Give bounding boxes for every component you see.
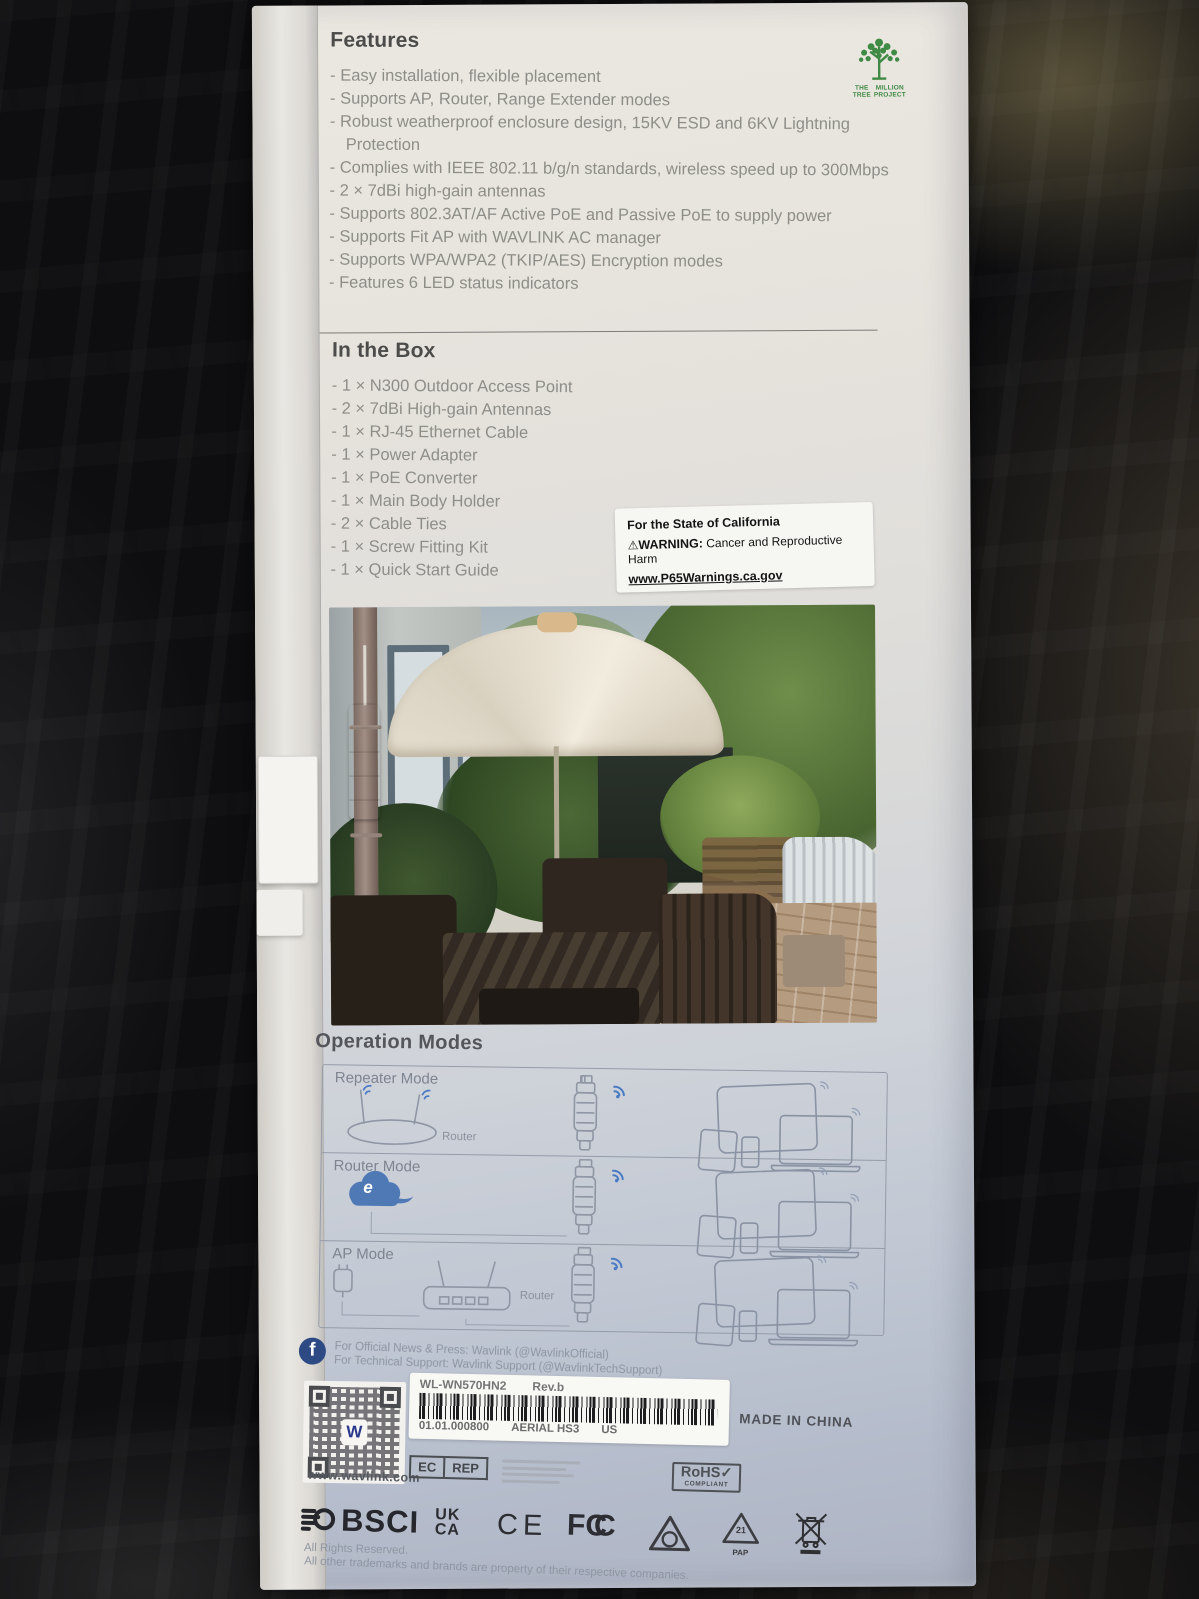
box-item: - 1 × Power Adapter [331,444,811,470]
warning-title: For the State of California [627,512,863,532]
sticker-code: 01.01.000800 [419,1420,490,1434]
wifi-signal-icon [606,1251,628,1273]
outdoor-access-point-device [349,703,381,819]
feature-item: - Complies with IEEE 802.11 b/g/n standa… [330,157,896,183]
operation-modes-heading: Operation Modes [315,1030,483,1055]
fcc-f: F [567,1509,586,1542]
feature-item: - Supports AP, Router, Range Extender mo… [330,88,896,114]
router-label: Router [442,1131,477,1143]
bsci-logo: BSCI [301,1502,420,1541]
pap-number: 21 [721,1525,761,1536]
pap-label: PAP [720,1548,760,1558]
feature-item: - Supports WPA/WPA2 (TKIP/AES) Encryptio… [329,249,895,275]
feature-item: - Easy installation, flexible placement [330,65,896,91]
dark-dining-chair [659,893,778,1024]
ap-antenna [363,645,366,705]
connection-line [465,1319,569,1326]
feature-item: - 2 × 7dBi high-gain antennas [329,180,895,206]
outdoor-ap-icon [567,1159,604,1239]
power-plug-icon [328,1263,359,1301]
sticker-name: AERIAL HS3 [511,1422,579,1436]
tree-logo-text: THE TREE MILLION PROJECT [846,84,912,98]
rohs-compliant-text: COMPLIANT [680,1480,732,1488]
internet-e-letter: e [363,1178,373,1198]
features-heading: Features [330,29,896,56]
features-list: - Easy installation, flexible placement … [329,65,896,298]
tree-icon [852,32,906,84]
model-barcode-sticker: WL-WN570HN2Rev.b 01.01.000800AERIAL HS3U… [409,1373,730,1446]
box-spine-torn-flap [258,756,319,884]
compliance-row: ECREP RoHS✓ COMPLIANT [409,1455,742,1493]
bsci-text: BSCI [341,1503,420,1541]
model-number: WL-WN570HN2 [420,1377,507,1393]
million-tree-project-logo: THE TREE MILLION PROJECT [846,32,912,98]
four-port-router-icon [415,1256,520,1319]
feature-item: - Supports Fit AP with WAVLINK AC manage… [329,226,895,252]
planter-pot [783,935,845,987]
qr-finder-square [380,1387,401,1408]
box-item: - 1 × N300 Outdoor Access Point [332,375,812,401]
social-text: For Official News & Press: Wavlink (@Wav… [334,1339,665,1378]
outdoor-ap-icon [565,1247,602,1327]
client-devices-icon [693,1252,862,1346]
rohs-text: RoHS✓ [681,1465,733,1481]
tree-word-project: PROJECT [874,91,906,98]
ec-rep-mark: ECREP [409,1455,488,1480]
warning-text: ⚠WARNING: Cancer and Reproductive Harm [627,532,864,566]
repeater-mode-row: Repeater Mode Router [322,1065,887,1161]
feature-item: - Robust weatherproof enclosure design, … [330,111,896,160]
tree-word-tree: TREE [853,92,871,99]
feature-item: - Supports 802.3AT/AF Active PoE and Pas… [329,203,895,229]
fcc-c: C [594,1509,617,1543]
section-divider [320,330,878,334]
wifi-signal-icon [607,1163,629,1185]
client-devices-icon [694,1164,863,1258]
outdoor-ap-icon [568,1075,605,1155]
qr-center-logo: W [341,1419,367,1445]
warning-bold: WARNING: [638,536,703,552]
in-the-box-heading: In the Box [332,339,812,366]
rohs-mark: RoHS✓ COMPLIANT [671,1462,741,1493]
router-mode-row: Router Mode e [321,1153,886,1249]
internet-cloud-icon [341,1167,418,1214]
california-warning-sticker: For the State of California ⚠WARNING: Ca… [615,502,875,593]
qr-finder-square [309,1386,330,1407]
wifi-router-icon [340,1083,453,1147]
router-label: Router [520,1290,555,1302]
safety-triangle-mark [646,1513,693,1559]
ec-cell: EC [409,1455,446,1479]
box-item: - 1 × RJ-45 Ethernet Cable [331,421,811,447]
box-spine-notch [256,890,302,936]
dark-dining-chair [479,988,639,1025]
connection-line [371,1212,567,1237]
feature-item: - Features 6 LED status indicators [329,272,895,298]
warning-url: www.P65Warnings.ca.gov [628,566,864,586]
facebook-f-glyph: f [309,1340,315,1361]
wifi-signal-icon [608,1079,630,1101]
rep-address-lines [501,1458,580,1488]
connection-line [341,1301,419,1316]
ce-mark: CE [497,1509,548,1543]
fcc-mark: FCC [567,1509,617,1544]
revision: Rev.b [532,1379,564,1394]
product-box-back-panel: Features - Easy installation, flexible p… [252,2,976,1590]
facebook-icon: f [299,1338,326,1365]
rep-cell: REP [445,1456,488,1480]
ukca-ca: CA [435,1522,460,1538]
photo-scene: Features - Easy installation, flexible p… [0,0,1199,1599]
patio-lifestyle-photo [329,605,877,1026]
warning-triangle-icon: ⚠ [627,538,638,552]
operation-modes-panel: Repeater Mode Router [318,1064,888,1336]
bsci-hand-icon [301,1505,336,1536]
umbrella-finial [537,612,577,632]
features-section: Features - Easy installation, flexible p… [329,29,896,298]
weee-crossed-bin-mark [790,1510,831,1562]
ukca-mark: UK CA [435,1507,461,1538]
made-in-china-text: MADE IN CHINA [739,1411,853,1430]
sticker-region: US [601,1424,617,1436]
ap-mode-row: AP Mode Rout [319,1241,884,1337]
dark-dining-chair [329,895,457,1026]
box-item: - 1 × PoE Converter [331,467,811,493]
pap-21-recycle-mark: 21 PAP [720,1511,761,1558]
box-item: - 2 × 7dBi High-gain Antennas [332,398,812,424]
ap-mode-label: AP Mode [332,1245,394,1263]
